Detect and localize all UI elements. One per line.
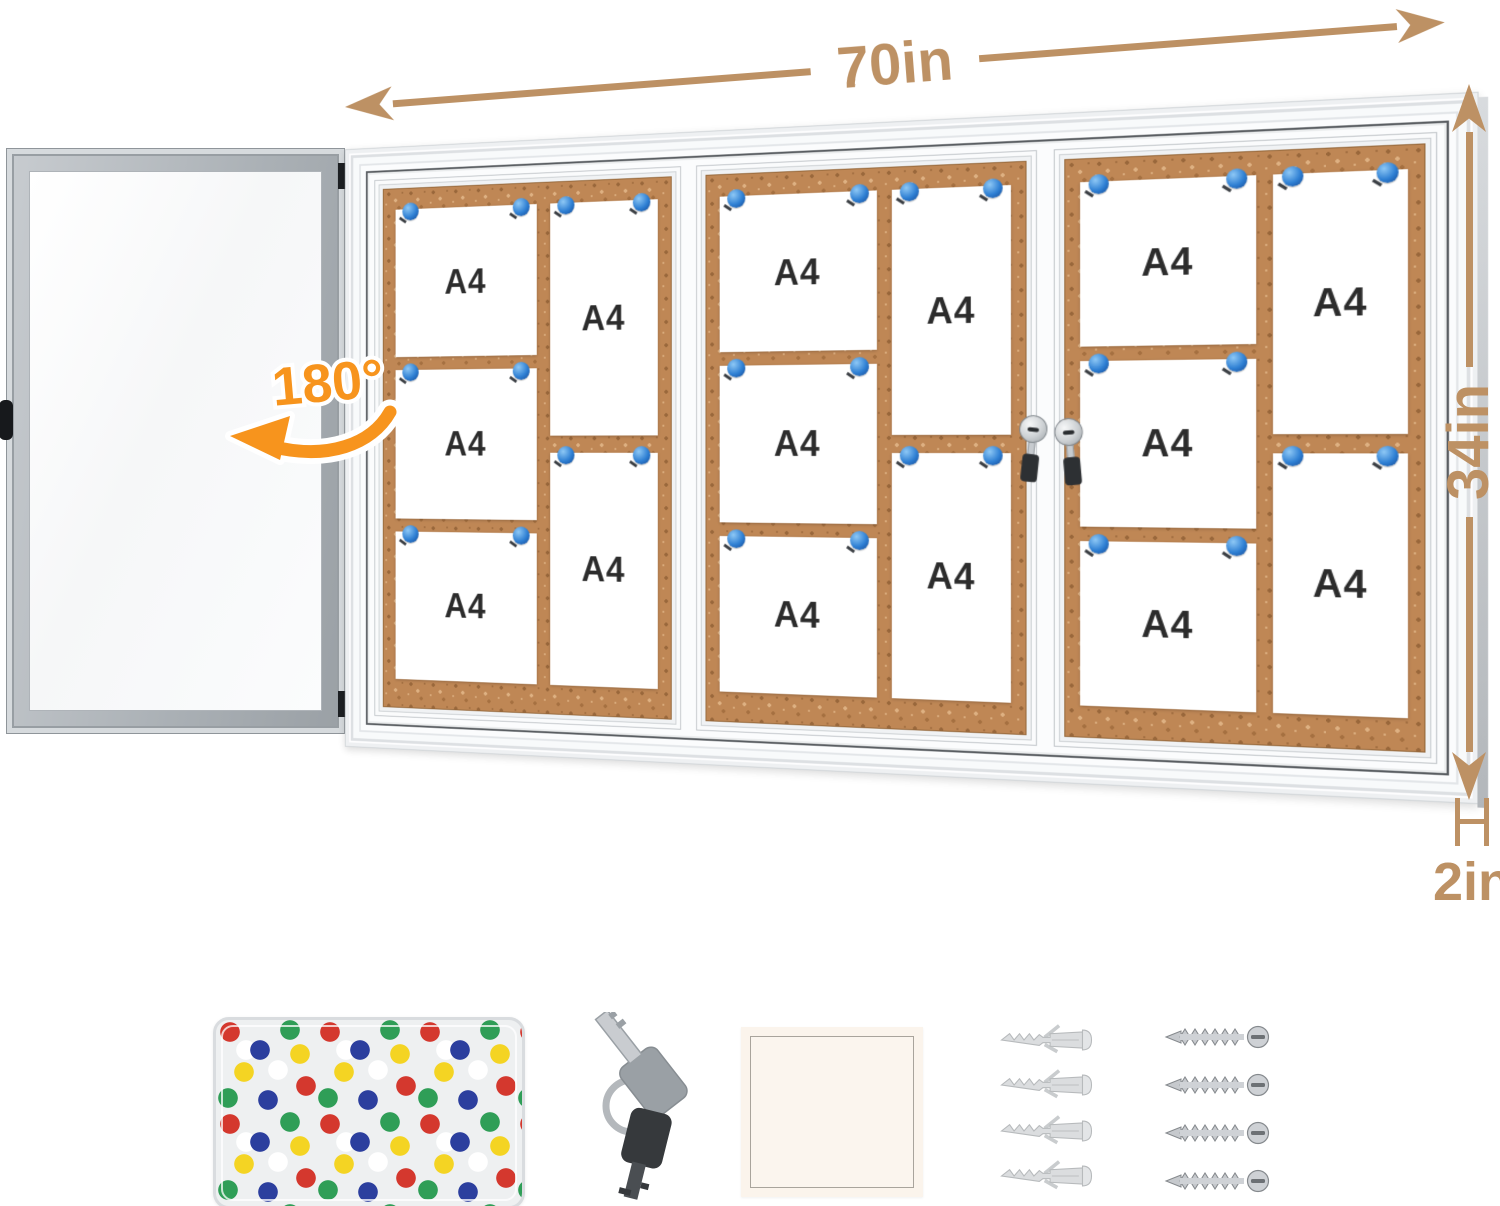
push-pin-icon <box>983 178 1003 198</box>
paper-label: A4 <box>927 555 976 599</box>
paper-label: A4 <box>445 261 487 302</box>
push-pin-icon <box>727 359 745 378</box>
push-pin-icon <box>513 526 530 544</box>
height-label: 34in <box>1411 367 1500 517</box>
paper-column: A4 A4 A4 <box>396 204 537 684</box>
a4-paper: A4 <box>1080 541 1256 713</box>
paper-label: A4 <box>1141 239 1193 284</box>
paper-column: A4 A4 <box>892 185 1012 703</box>
key-head-icon <box>1019 453 1039 482</box>
push-pin-icon <box>1282 166 1303 187</box>
cork-panel: A4 A4 A4 A4 A4 <box>374 166 680 730</box>
a4-paper: A4 <box>396 531 537 684</box>
push-pin-icon <box>633 446 651 464</box>
wall-anchors <box>992 1022 1112 1194</box>
paper-column: A4 A4 <box>550 199 657 689</box>
paper-column: A4 A4 A4 <box>1080 175 1256 712</box>
dimension-line <box>1466 132 1473 367</box>
push-pin-icon <box>1377 446 1399 467</box>
push-pin-icon <box>1089 534 1109 554</box>
screw-icon <box>1164 1120 1274 1146</box>
wall-anchor-icon <box>992 1158 1110 1194</box>
push-pin-icon <box>1227 168 1248 189</box>
screw-icon <box>1164 1024 1274 1050</box>
lock-with-key <box>1053 416 1087 485</box>
push-pin-icon <box>1089 354 1109 374</box>
lock-with-key <box>1014 414 1049 483</box>
paper-label: A4 <box>445 587 487 628</box>
push-pin-box-icon <box>213 1017 525 1206</box>
paper-label: A4 <box>1313 280 1368 326</box>
a4-paper: A4 <box>892 453 1012 703</box>
push-pin-icon <box>850 357 869 376</box>
depth-bracket-icon <box>1455 798 1489 846</box>
cork-surface: A4 A4 A4 A4 A4 <box>1065 143 1426 752</box>
pad-border <box>750 1036 914 1188</box>
wall-anchor-icon <box>992 1113 1110 1149</box>
push-pin-icon <box>850 184 869 204</box>
bulletin-board-cabinet: A4 A4 A4 A4 A4 A4 <box>345 92 1479 805</box>
push-pin-icon <box>557 196 574 215</box>
push-pin-icon <box>1227 352 1248 372</box>
push-pin-icon <box>633 193 651 212</box>
paper-label: A4 <box>927 289 976 333</box>
white-square-pad-icon <box>741 1027 923 1197</box>
push-pin-icon <box>1089 174 1109 195</box>
paper-label: A4 <box>774 423 821 465</box>
push-pin-icon <box>402 364 418 382</box>
paper-column: A4 A4 A4 <box>719 190 876 697</box>
paper-label: A4 <box>774 594 821 637</box>
push-pin-icon <box>402 202 418 220</box>
cabinet-locks <box>1017 414 1084 481</box>
door-lock-icon <box>0 400 13 440</box>
width-label: 70in <box>835 31 955 98</box>
push-pin-icon <box>727 189 745 208</box>
paper-label: A4 <box>774 251 821 294</box>
a4-paper: A4 <box>719 536 876 698</box>
a4-paper: A4 <box>1273 169 1408 434</box>
dimension-line <box>393 68 812 107</box>
paper-label: A4 <box>582 298 626 339</box>
push-pin-icon <box>513 362 530 380</box>
cork-panel: A4 A4 A4 A4 A4 <box>696 150 1038 746</box>
wall-anchor-icon <box>992 1067 1110 1103</box>
wall-anchor-icon <box>992 1022 1110 1058</box>
push-pin-icon <box>900 446 919 465</box>
a4-paper: A4 <box>550 453 657 689</box>
push-pin-icon <box>1227 535 1248 555</box>
push-pin-icon <box>983 446 1003 465</box>
swing-arrow-icon <box>222 398 404 472</box>
screw-icon <box>1164 1072 1274 1098</box>
cabinet-body: A4 A4 A4 A4 A4 A4 <box>374 132 1437 764</box>
paper-label: A4 <box>582 549 626 590</box>
arrow-up-icon <box>1452 84 1486 132</box>
height-label-text: 34in <box>1440 384 1498 500</box>
a4-paper: A4 <box>396 369 537 520</box>
cork-surface: A4 A4 A4 A4 A4 <box>705 161 1027 735</box>
paper-label: A4 <box>1313 561 1368 607</box>
screw-icon <box>1164 1168 1274 1194</box>
product-diagram: 70in 34in 2in 180° <box>0 0 1500 1206</box>
push-pin-icon <box>402 525 418 543</box>
a4-paper: A4 <box>1080 359 1256 528</box>
paper-label: A4 <box>1141 422 1193 466</box>
a4-paper: A4 <box>1273 453 1408 718</box>
a4-paper: A4 <box>719 190 876 352</box>
lock-icon <box>1018 414 1049 444</box>
push-pin-icon <box>1282 446 1303 466</box>
key-head-icon <box>1062 456 1081 485</box>
lock-icon <box>1053 416 1084 446</box>
cork-surface: A4 A4 A4 A4 A4 <box>383 176 672 719</box>
depth-label: 2in <box>1412 855 1500 909</box>
paper-label: A4 <box>445 424 487 464</box>
a4-paper: A4 <box>1080 175 1256 347</box>
cabinet-frame: A4 A4 A4 A4 A4 A4 <box>345 92 1479 805</box>
cork-panel: A4 A4 A4 A4 A4 <box>1054 132 1437 764</box>
push-pin-icon <box>513 198 530 217</box>
arrow-right-icon <box>1396 5 1446 43</box>
a4-paper: A4 <box>719 364 876 524</box>
a4-paper: A4 <box>396 204 537 357</box>
push-pin-icon <box>1377 162 1399 183</box>
arrow-down-icon <box>1452 752 1486 800</box>
paper-label: A4 <box>1141 603 1193 648</box>
push-pin-icon <box>727 529 745 548</box>
depth-dimension: 2in <box>1412 798 1500 909</box>
screws <box>1164 1024 1276 1194</box>
arrow-left-icon <box>344 86 394 124</box>
height-dimension: 34in <box>1440 84 1498 800</box>
a4-paper: A4 <box>892 185 1012 435</box>
push-pin-icon <box>850 530 869 549</box>
push-pin-icon <box>900 182 919 202</box>
paper-column: A4 A4 <box>1273 169 1408 718</box>
keys-icon <box>556 1012 732 1204</box>
dimension-line <box>978 23 1397 62</box>
dimension-line <box>1466 517 1473 752</box>
a4-paper: A4 <box>550 199 657 435</box>
push-pin-icon <box>557 446 574 464</box>
